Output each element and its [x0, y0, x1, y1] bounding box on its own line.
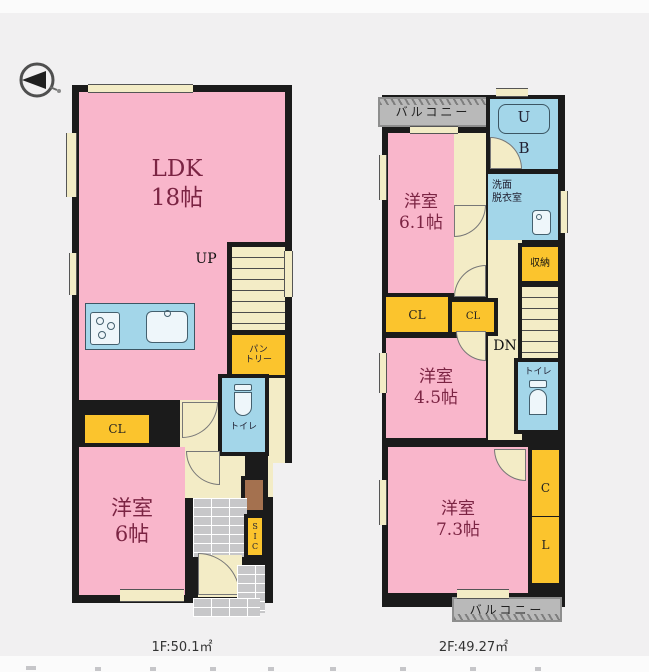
cropped-edge-artifact	[210, 667, 216, 671]
window-room61-balcony	[410, 126, 458, 134]
ldk-size: 18帖	[102, 184, 252, 213]
cropped-edge-artifact	[330, 667, 336, 671]
floor1-area-label: 1F:50.1㎡	[72, 636, 292, 655]
cropped-edge-artifact	[400, 667, 406, 671]
room-61jo-name: 洋室	[404, 192, 438, 213]
stairs-up	[232, 247, 285, 330]
room-6jo: 洋室 6帖	[79, 447, 185, 595]
window-left-bay	[66, 133, 77, 197]
shoe-closet-sic: SIC	[248, 518, 262, 555]
window-left-small	[69, 253, 77, 295]
stairs-down-label: DN	[488, 338, 522, 354]
room-45jo-name: 洋室	[419, 367, 453, 388]
closet-1f: CL	[85, 415, 149, 443]
closet-vert-c: C	[541, 482, 550, 516]
sic-label: SIC	[250, 522, 259, 552]
stairs-down	[522, 287, 558, 358]
cropped-edge-artifact	[95, 667, 101, 671]
entrance-porch	[193, 598, 260, 617]
cropped-edge-artifact	[535, 667, 541, 671]
window-left-room45	[379, 353, 387, 393]
ub-label-u: U	[490, 108, 558, 127]
north-arrow-icon	[14, 56, 66, 108]
floor-plan-2f: バルコニー U B 洗面 脱衣室 洋室 6.1帖 CL CL 収納 DN 洋室	[382, 95, 565, 607]
kitchen-counter	[85, 303, 195, 350]
unit-bath: U B	[490, 99, 558, 169]
room-6jo-name: 洋室	[111, 495, 153, 521]
closet-2f-2-label: CL	[466, 312, 480, 322]
balcony-bottom: バルコニー	[452, 597, 562, 622]
toilet-2f-tank-icon	[529, 380, 547, 388]
balcony-top: バルコニー	[378, 97, 488, 127]
room-73jo-size: 7.3帖	[436, 520, 480, 541]
washroom-label-1: 洗面	[492, 180, 512, 192]
floor-plan-1f: LDK 18帖 UP パン トリー トイレ CL 洋室 6帖	[72, 85, 292, 603]
washroom: 洗面 脱衣室	[488, 174, 558, 240]
pantry-label-2: トリー	[245, 355, 272, 365]
sink-icon	[146, 311, 188, 343]
room-73jo-name: 洋室	[441, 499, 475, 520]
window-top	[88, 84, 193, 93]
cropped-edge-artifact	[470, 667, 476, 671]
room-61jo: 洋室 6.1帖	[388, 133, 454, 293]
closet-2f-1-label: CL	[408, 309, 425, 321]
window-right-stairs	[284, 251, 293, 297]
closet-vert-l: L	[542, 517, 550, 551]
toilet-tank-icon	[234, 384, 252, 391]
stairs-up-label: UP	[184, 251, 228, 267]
footprint-notch	[273, 463, 292, 603]
room-6jo-size: 6帖	[115, 521, 149, 547]
toilet-2f-label: トイレ	[518, 367, 558, 377]
room-61jo-size: 6.1帖	[399, 213, 443, 234]
toilet-1f: トイレ	[222, 378, 265, 452]
pantry: パン トリー	[232, 335, 285, 375]
entry-door-panel	[245, 480, 263, 510]
stove-icon	[90, 312, 120, 345]
cropped-edge-artifact	[268, 667, 274, 671]
closet-2f-vertical: C L	[532, 450, 559, 583]
ldk-name: LDK	[102, 155, 252, 184]
window-room73-balcony	[457, 589, 509, 599]
window-left-room61	[379, 155, 387, 200]
cropped-edge-artifact	[26, 666, 36, 670]
toilet-2f: トイレ	[518, 362, 558, 430]
balcony-top-hatch	[380, 99, 486, 105]
window-right-washroom	[560, 191, 568, 233]
page-top-margin	[0, 0, 649, 13]
closet-2f-1: CL	[386, 297, 448, 332]
room-45jo-size: 4.5帖	[414, 388, 458, 409]
closet-2f-2: CL	[452, 302, 494, 332]
balcony-bottom-hatch	[454, 614, 560, 620]
storage-label: 収納	[530, 259, 550, 269]
window-left-room73	[379, 480, 387, 525]
window-bottom-room6	[120, 589, 184, 602]
storage: 収納	[522, 247, 558, 281]
closet-1f-label: CL	[108, 423, 125, 435]
toilet-2f-bowl-icon	[529, 389, 547, 415]
floor2-area-label: 2F:49.27㎡	[382, 636, 565, 655]
toilet-1f-label: トイレ	[222, 422, 265, 432]
washing-machine-icon	[532, 210, 551, 235]
cropped-edge-artifact	[150, 667, 156, 671]
toilet-bowl-icon	[234, 392, 252, 416]
window-above-ub	[496, 88, 528, 97]
genkan-floor	[193, 498, 247, 557]
pantry-label-1: パン	[249, 345, 267, 355]
washroom-label-2: 脱衣室	[492, 193, 522, 205]
room-ldk-label: LDK 18帖	[102, 155, 252, 213]
